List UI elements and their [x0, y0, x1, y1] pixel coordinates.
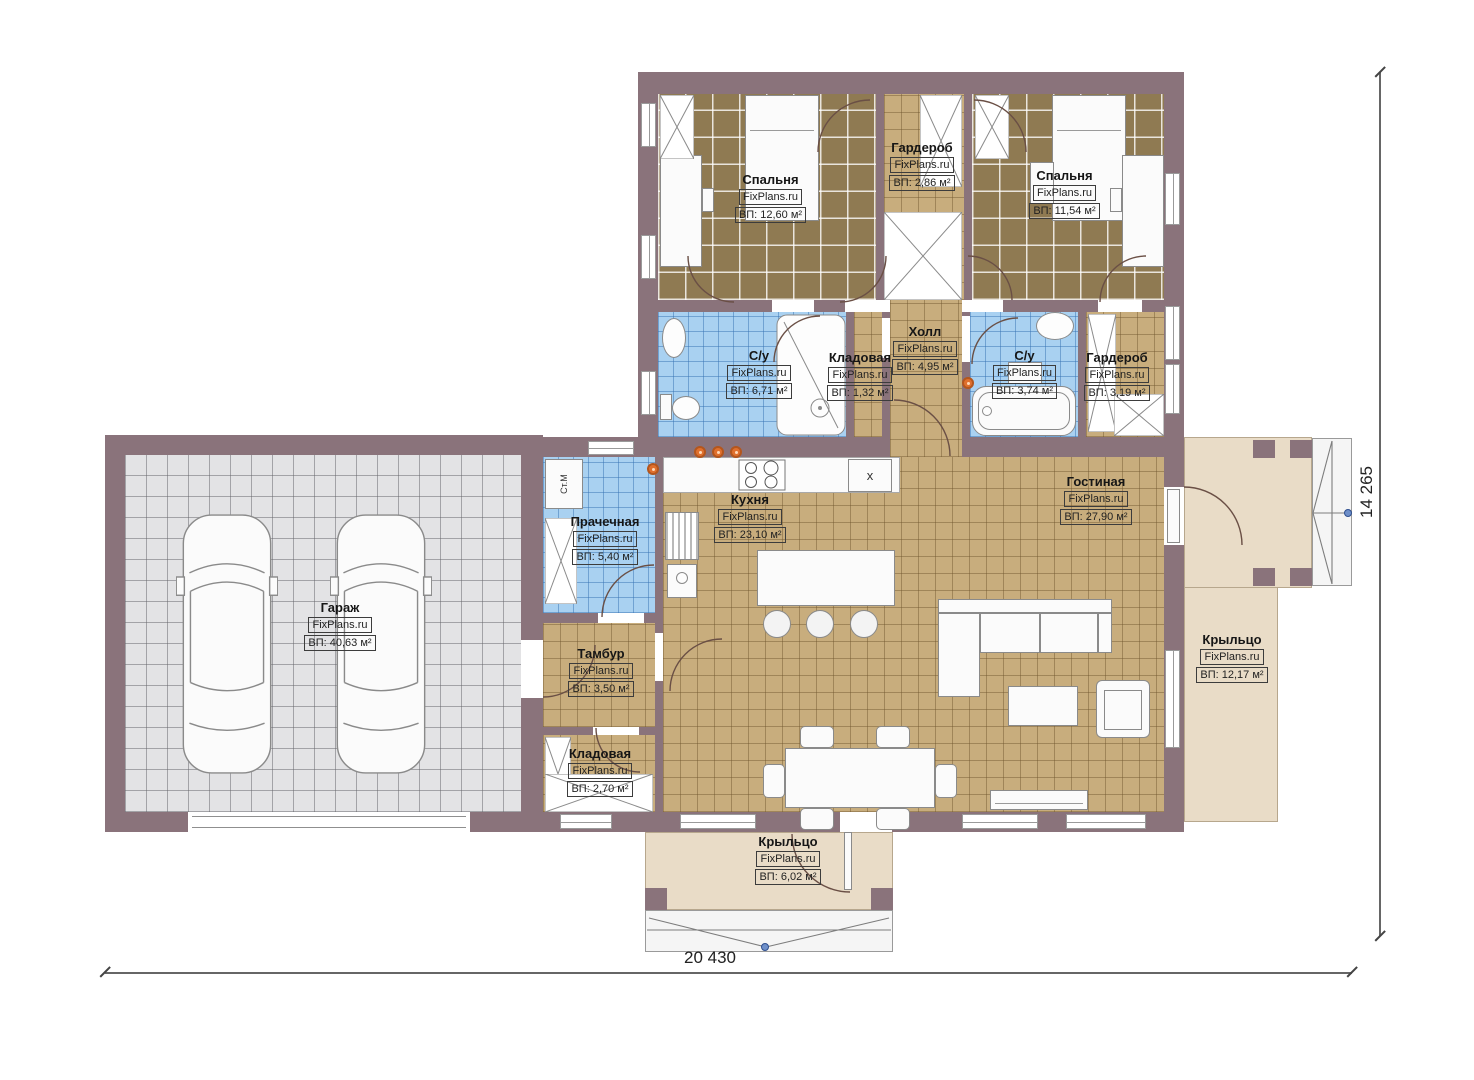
- room-label-bath1: С/у FixPlans.ru ВП: 6,71 м²: [716, 348, 802, 399]
- watermark: FixPlans.ru: [756, 851, 819, 867]
- room-area: ВП: 3,50 м²: [568, 681, 633, 697]
- room-name: Крыльцо: [738, 834, 838, 849]
- door-arc: [818, 100, 870, 152]
- light-marker: [712, 446, 724, 458]
- watermark: FixPlans.ru: [569, 663, 632, 679]
- room-area: ВП: 6,02 м²: [755, 869, 820, 885]
- door-arc: [840, 256, 886, 302]
- room-label-storage2: Кладовая FixPlans.ru ВП: 2,70 м²: [554, 746, 646, 797]
- room-area: ВП: 3,19 м²: [1084, 385, 1149, 401]
- dimension-node: [761, 943, 769, 951]
- step-line: [766, 918, 889, 947]
- room-name: Тамбур: [556, 646, 646, 661]
- dimension-line-vertical: [1379, 72, 1381, 936]
- room-name: Гостиная: [1050, 474, 1142, 489]
- watermark: FixPlans.ru: [1085, 367, 1148, 383]
- watermark: FixPlans.ru: [573, 531, 636, 547]
- room-name: Прачечная: [560, 514, 650, 529]
- room-name: Крыльцо: [1186, 632, 1278, 647]
- room-area: ВП: 12,60 м²: [735, 207, 806, 223]
- room-name: Гардероб: [880, 140, 964, 155]
- door-arc: [894, 400, 950, 456]
- room-area: ВП: 1,32 м²: [827, 385, 892, 401]
- watermark: FixPlans.ru: [727, 365, 790, 381]
- room-area: ВП: 4,95 м²: [892, 359, 957, 375]
- door-arc: [602, 565, 654, 617]
- dimension-line-horizontal: [105, 972, 1352, 974]
- room-name: Гардероб: [1076, 350, 1158, 365]
- room-label-laundry: Прачечная FixPlans.ru ВП: 5,40 м²: [560, 514, 650, 565]
- light-marker: [647, 463, 659, 475]
- watermark: FixPlans.ru: [739, 189, 802, 205]
- room-area: ВП: 2,86 м²: [889, 175, 954, 191]
- door-arc: [1184, 487, 1242, 545]
- door-arc: [688, 256, 734, 302]
- room-area: ВП: 3,74 м²: [992, 383, 1057, 399]
- room-label-tambur: Тамбур FixPlans.ru ВП: 3,50 м²: [556, 646, 646, 697]
- watermark: FixPlans.ru: [1033, 185, 1096, 201]
- room-area: ВП: 11,54 м²: [1029, 203, 1099, 219]
- room-label-garage: Гараж FixPlans.ru ВП: 40,63 м²: [285, 600, 395, 651]
- room-label-bedroom1: Спальня FixPlans.ru ВП: 12,60 м²: [718, 172, 823, 223]
- watermark: FixPlans.ru: [718, 509, 781, 525]
- room-area: ВП: 40,63 м²: [304, 635, 375, 651]
- light-marker: [962, 377, 974, 389]
- door-arc: [1100, 256, 1146, 302]
- door-arc: [670, 639, 722, 691]
- watermark: FixPlans.ru: [568, 763, 631, 779]
- room-name: Гараж: [285, 600, 395, 615]
- floor-plan: Ст.М х: [0, 0, 1474, 1080]
- room-area: ВП: 27,90 м²: [1060, 509, 1131, 525]
- room-label-wardrobe2: Гардероб FixPlans.ru ВП: 3,19 м²: [1076, 350, 1158, 401]
- step-line: [1313, 441, 1332, 513]
- room-name: Спальня: [1012, 168, 1117, 183]
- room-name: Холл: [880, 324, 970, 339]
- room-name: Кладовая: [554, 746, 646, 761]
- watermark: FixPlans.ru: [1200, 649, 1263, 665]
- dimension-width-label: 20 430: [645, 948, 775, 968]
- dimension-height-label: 14 265: [1357, 450, 1377, 534]
- room-label-hall: Холл FixPlans.ru ВП: 4,95 м²: [880, 324, 970, 375]
- door-arc: [974, 100, 1026, 152]
- room-area: ВП: 12,17 м²: [1196, 667, 1267, 683]
- watermark: FixPlans.ru: [993, 365, 1056, 381]
- room-area: ВП: 2,70 м²: [567, 781, 632, 797]
- room-label-kitchen: Кухня FixPlans.ru ВП: 23,10 м²: [700, 492, 800, 543]
- room-area: ВП: 23,10 м²: [714, 527, 785, 543]
- room-label-bath2: С/у FixPlans.ru ВП: 3,74 м²: [982, 348, 1067, 399]
- watermark: FixPlans.ru: [1064, 491, 1127, 507]
- watermark: FixPlans.ru: [308, 617, 371, 633]
- room-name: Спальня: [718, 172, 823, 187]
- room-label-wardrobe-top: Гардероб FixPlans.ru ВП: 2,86 м²: [880, 140, 964, 191]
- light-marker: [730, 446, 742, 458]
- room-label-porch-bottom: Крыльцо FixPlans.ru ВП: 6,02 м²: [738, 834, 838, 885]
- room-area: ВП: 5,40 м²: [572, 549, 637, 565]
- light-marker: [694, 446, 706, 458]
- room-name: Кухня: [700, 492, 800, 507]
- door-arc: [968, 256, 1012, 300]
- room-label-bedroom2: Спальня FixPlans.ru ВП: 11,54 м²: [1012, 168, 1117, 219]
- room-name: С/у: [716, 348, 802, 363]
- room-name: С/у: [982, 348, 1067, 363]
- watermark: FixPlans.ru: [890, 157, 953, 173]
- step-line: [1313, 513, 1332, 584]
- room-label-living: Гостиная FixPlans.ru ВП: 27,90 м²: [1050, 474, 1142, 525]
- step-line: [649, 918, 766, 947]
- room-area: ВП: 6,71 м²: [726, 383, 791, 399]
- watermark: FixPlans.ru: [893, 341, 956, 357]
- room-label-porch-right: Крыльцо FixPlans.ru ВП: 12,17 м²: [1186, 632, 1278, 683]
- dimension-node: [1344, 509, 1352, 517]
